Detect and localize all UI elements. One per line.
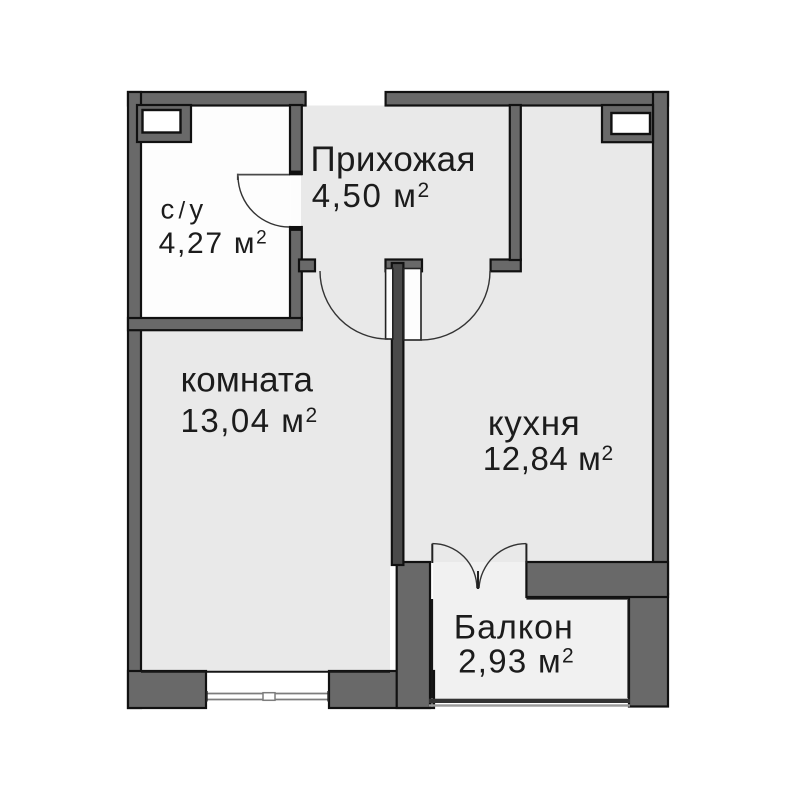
svg-text:с/у: с/у [161, 194, 208, 225]
svg-text:13,04 м2: 13,04 м2 [181, 402, 319, 439]
svg-text:Прихожая: Прихожая [311, 140, 476, 179]
svg-text:кухня: кухня [488, 404, 581, 443]
svg-text:12,84 м2: 12,84 м2 [483, 440, 614, 477]
svg-text:4,50 м2: 4,50 м2 [312, 177, 431, 214]
svg-text:4,27 м2: 4,27 м2 [159, 227, 269, 260]
svg-text:2,93 м2: 2,93 м2 [458, 642, 575, 679]
svg-text:Балкон: Балкон [454, 608, 574, 646]
svg-text:комната: комната [181, 360, 314, 399]
